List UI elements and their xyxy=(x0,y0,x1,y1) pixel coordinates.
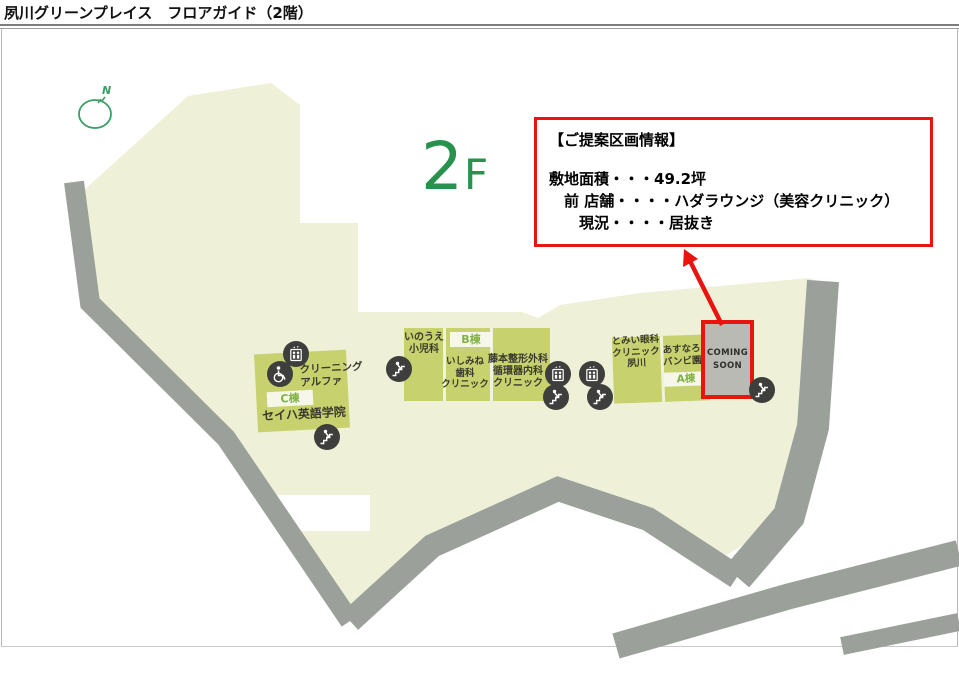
banner-building-b: B棟 xyxy=(450,332,492,347)
stairs-icon xyxy=(386,356,412,382)
tenant-cleaning-alpha: クリーニング アルファ xyxy=(299,360,376,390)
compass-north-label: N xyxy=(102,84,111,97)
compass-icon: N xyxy=(76,84,122,132)
vacant-unit-coming-soon: COMING SOON xyxy=(701,320,754,399)
proposal-callout: 【ご提案区画情報】 敷地面積・・・49.2坪 前 店舗・・・・ハダラウンジ（美容… xyxy=(534,117,933,247)
compass-shape xyxy=(76,84,122,132)
floor-suffix: F xyxy=(464,154,488,196)
floor-indicator: 2 F xyxy=(421,134,488,200)
floor-number: 2 xyxy=(421,134,463,200)
wheelchair-icon xyxy=(267,361,293,387)
callout-line-previous-tenant: 前 店舗・・・・ハダラウンジ（美容クリニック） xyxy=(549,190,920,212)
header-separator xyxy=(0,24,959,29)
banner-building-c: C棟 xyxy=(267,390,314,407)
coming-soon-label: COMING SOON xyxy=(707,347,748,372)
stairs-icon xyxy=(749,377,775,403)
tenant-inoue-pediatrics: いのうえ 小児科 xyxy=(402,332,446,356)
tenant-ishimine-dental: いしみね 歯科 クリニック xyxy=(441,356,489,391)
callout-body: 敷地面積・・・49.2坪 前 店舗・・・・ハダラウンジ（美容クリニック） 現況・… xyxy=(549,168,920,234)
tenant-fujimoto-clinic: 藤本整形外科 循環器内科 クリニック xyxy=(485,354,551,391)
callout-title: 【ご提案区画情報】 xyxy=(549,129,920,150)
road-southeast-2 xyxy=(842,622,959,646)
tenant-tomii-eye-clinic: とみい眼科 クリニック 夙川 xyxy=(608,334,664,372)
tenant-asunaro-bambi: あすなろ バンビ園 xyxy=(657,343,706,369)
callout-line-area: 敷地面積・・・49.2坪 xyxy=(549,168,920,190)
page-title: 夙川グリーンプレイス フロアガイド（2階） xyxy=(4,2,313,23)
floor-guide-page: { "header": { "title": "夙川グリーンプレイス フロアガイ… xyxy=(0,0,959,675)
callout-line-current-state: 現況・・・・居抜き xyxy=(549,212,920,234)
stairs-icon xyxy=(543,384,569,410)
stairs-icon xyxy=(314,424,340,450)
stairs-icon xyxy=(587,384,613,410)
